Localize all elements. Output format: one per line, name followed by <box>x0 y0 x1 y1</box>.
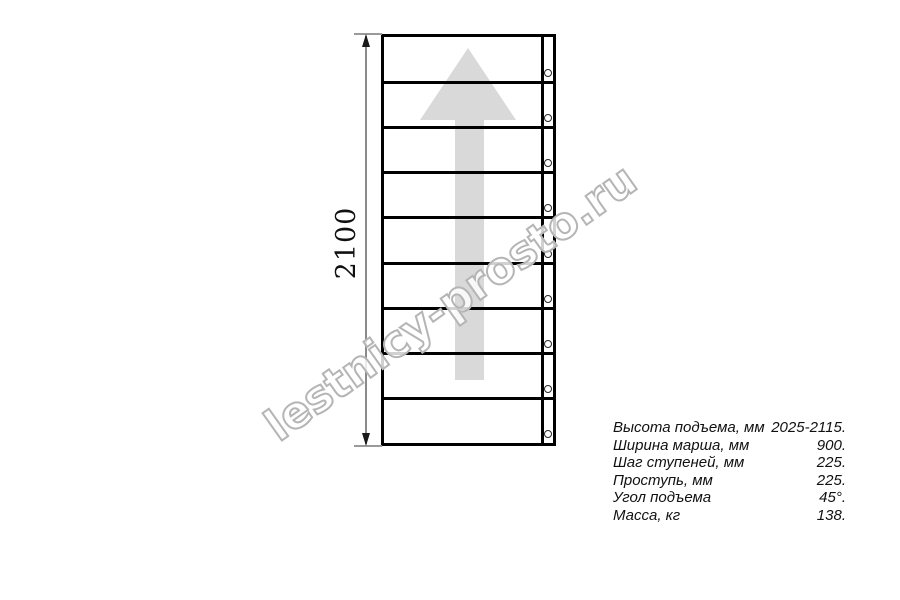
spec-value: 2025-2115. <box>771 419 846 437</box>
spec-row: Ширина марша, мм900. <box>613 437 846 455</box>
bolt-hole-icon <box>544 159 552 167</box>
spec-row: Высота подъема, мм2025-2115. <box>613 419 846 437</box>
spec-row: Масса, кг138. <box>613 507 846 525</box>
bolt-hole-icon <box>544 69 552 77</box>
spec-label: Проступь, мм <box>613 472 713 490</box>
spec-value: 138. <box>817 507 846 525</box>
bolt-hole-icon <box>544 430 552 438</box>
step-edge-line <box>384 81 553 84</box>
bolt-hole-icon <box>544 295 552 303</box>
step-edge-line <box>384 126 553 129</box>
step-edge-line <box>384 397 553 400</box>
bolt-hole-icon <box>544 340 552 348</box>
up-arrow-icon <box>420 48 516 120</box>
spec-row: Шаг ступеней, мм225. <box>613 454 846 472</box>
spec-value: 900. <box>817 437 846 455</box>
dimension-arrow-up-icon <box>362 34 370 47</box>
stair-drawing-canvas: 2100 lestnicy-prosto.ru Высота подъема, … <box>0 0 900 600</box>
spec-value: 225. <box>817 454 846 472</box>
spec-row: Угол подъема45°. <box>613 489 846 507</box>
step-edge-line <box>384 171 553 174</box>
spec-label: Масса, кг <box>613 507 680 525</box>
spec-label: Шаг ступеней, мм <box>613 454 744 472</box>
spec-value: 45°. <box>819 489 846 507</box>
bolt-hole-icon <box>544 385 552 393</box>
spec-label: Ширина марша, мм <box>613 437 749 455</box>
spec-label: Высота подъема, мм <box>613 419 765 437</box>
spec-label: Угол подъема <box>613 489 711 507</box>
dimension-arrow-down-icon <box>362 433 370 446</box>
spec-value: 225. <box>817 472 846 490</box>
bolt-hole-icon <box>544 114 552 122</box>
dimension-label: 2100 <box>334 183 360 303</box>
spec-row: Проступь, мм225. <box>613 472 846 490</box>
spec-table: Высота подъема, мм2025-2115.Ширина марша… <box>613 419 846 525</box>
